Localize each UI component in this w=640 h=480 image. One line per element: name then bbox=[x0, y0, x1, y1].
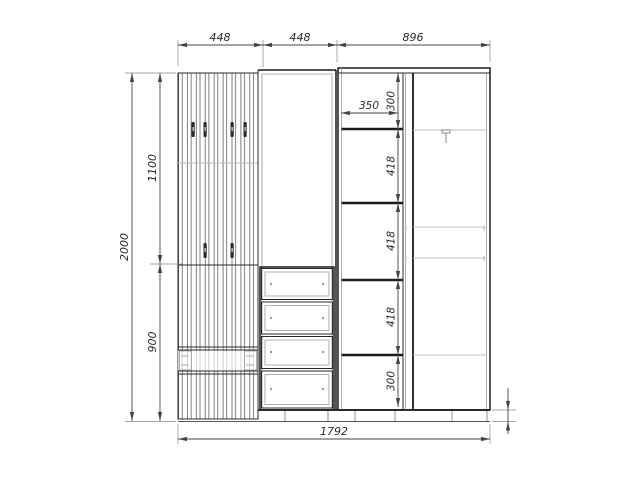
plinth-feet-ticks bbox=[285, 411, 487, 421]
wardrobe-door bbox=[406, 73, 487, 410]
hinge-marks bbox=[406, 226, 484, 261]
dim-label-418-2: 418 bbox=[386, 231, 398, 251]
drawer-3 bbox=[262, 337, 333, 369]
middle-section bbox=[258, 70, 336, 419]
drawer-1 bbox=[262, 269, 333, 300]
right-section bbox=[338, 68, 490, 410]
dim-label-896: 896 bbox=[403, 31, 424, 44]
drawer-handle-dot bbox=[322, 388, 324, 390]
drawer-handle-dot bbox=[270, 317, 272, 319]
dim-label-2000: 2000 bbox=[118, 233, 131, 261]
drawer-handle-dot bbox=[322, 351, 324, 353]
dim-label-900: 900 bbox=[146, 332, 159, 353]
wardrobe-elevation-svg: 448 448 896 2000 1100 900 350 300 418 41… bbox=[0, 0, 640, 480]
dim-total-width: 1792 bbox=[178, 424, 490, 444]
dim-label-448-mid: 448 bbox=[290, 31, 311, 44]
drawer-handle-dot bbox=[270, 283, 272, 285]
dim-label-1792: 1792 bbox=[320, 425, 348, 438]
bench-seat bbox=[178, 347, 258, 374]
dim-label-300-bottom: 300 bbox=[386, 371, 398, 391]
drawer-4 bbox=[262, 371, 333, 408]
drawer-unit bbox=[260, 267, 334, 410]
left-slat-panel bbox=[178, 73, 258, 419]
drawer-handle-dot bbox=[270, 388, 272, 390]
dim-label-418-1: 418 bbox=[386, 156, 398, 176]
dim-shelf-column: 350 300 418 418 418 300 bbox=[341, 73, 398, 407]
dim-label-448-left: 448 bbox=[210, 31, 231, 44]
drawer-handle-dot bbox=[270, 351, 272, 353]
dim-label-1100: 1100 bbox=[146, 154, 159, 182]
drawer-2 bbox=[262, 302, 333, 334]
hanging-rail-icon bbox=[442, 130, 450, 143]
dim-top-widths: 448 448 896 bbox=[178, 31, 490, 67]
dim-plinth bbox=[492, 388, 516, 434]
drawer-handle-dot bbox=[322, 317, 324, 319]
drawer-handle-dot bbox=[322, 283, 324, 285]
dim-label-300-top: 300 bbox=[386, 91, 398, 111]
dim-left-heights: 2000 1100 900 bbox=[118, 73, 182, 422]
dim-label-418-3: 418 bbox=[386, 307, 398, 327]
dim-label-350: 350 bbox=[359, 100, 379, 112]
cad-drawing-canvas: 448 448 896 2000 1100 900 350 300 418 41… bbox=[0, 0, 640, 480]
right-cabinet-outline bbox=[338, 68, 490, 410]
